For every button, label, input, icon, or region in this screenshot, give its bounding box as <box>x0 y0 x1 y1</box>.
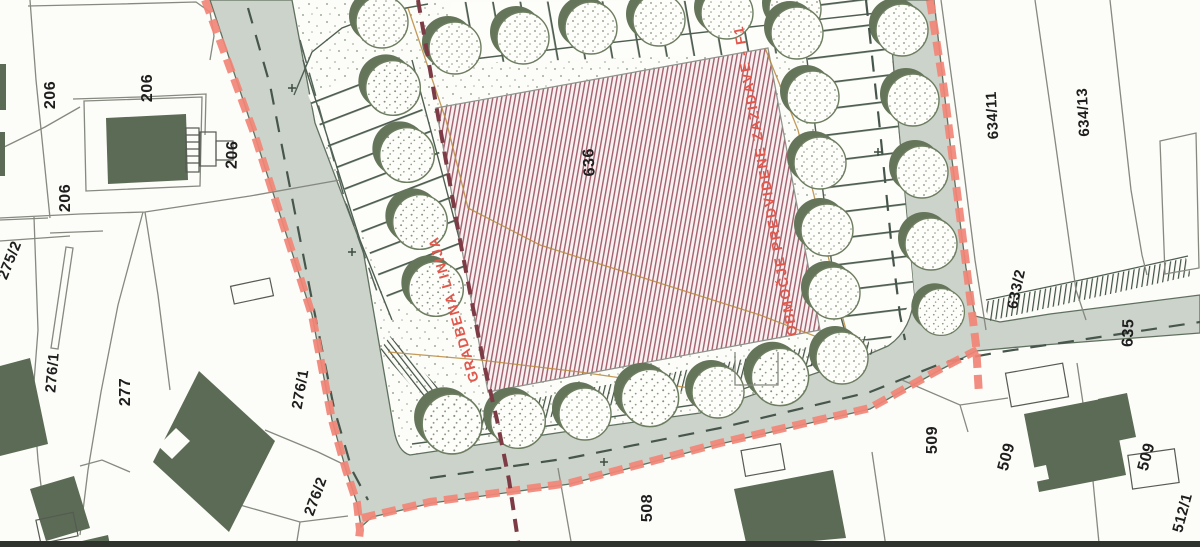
parcel-label-636: 636 <box>580 148 598 177</box>
parcel-label-635: 635 <box>1120 318 1138 347</box>
parcel-label-276-1: 276/1 <box>42 352 62 393</box>
scan-edge-band <box>0 541 1200 547</box>
planned-building-area <box>436 48 820 392</box>
cadastral-map: 206 206 206 206 275/2 276/1 277 276/1 27… <box>0 0 1200 547</box>
site-plan-scan: 206 206 206 206 275/2 276/1 277 276/1 27… <box>0 0 1200 547</box>
parcel-label-206: 206 <box>224 140 242 169</box>
parcel-label-206: 206 <box>139 74 156 102</box>
parcel-label-509: 509 <box>924 426 941 454</box>
parcel-label-277: 277 <box>117 378 134 406</box>
parcel-label-634-13: 634/13 <box>1074 87 1094 137</box>
parcel-label-634-11: 634/11 <box>983 91 1002 140</box>
parcel-label-508: 508 <box>639 494 656 522</box>
building-footprint <box>106 114 188 184</box>
parcel-label-206: 206 <box>42 81 59 109</box>
parcel-label-206: 206 <box>57 184 74 212</box>
